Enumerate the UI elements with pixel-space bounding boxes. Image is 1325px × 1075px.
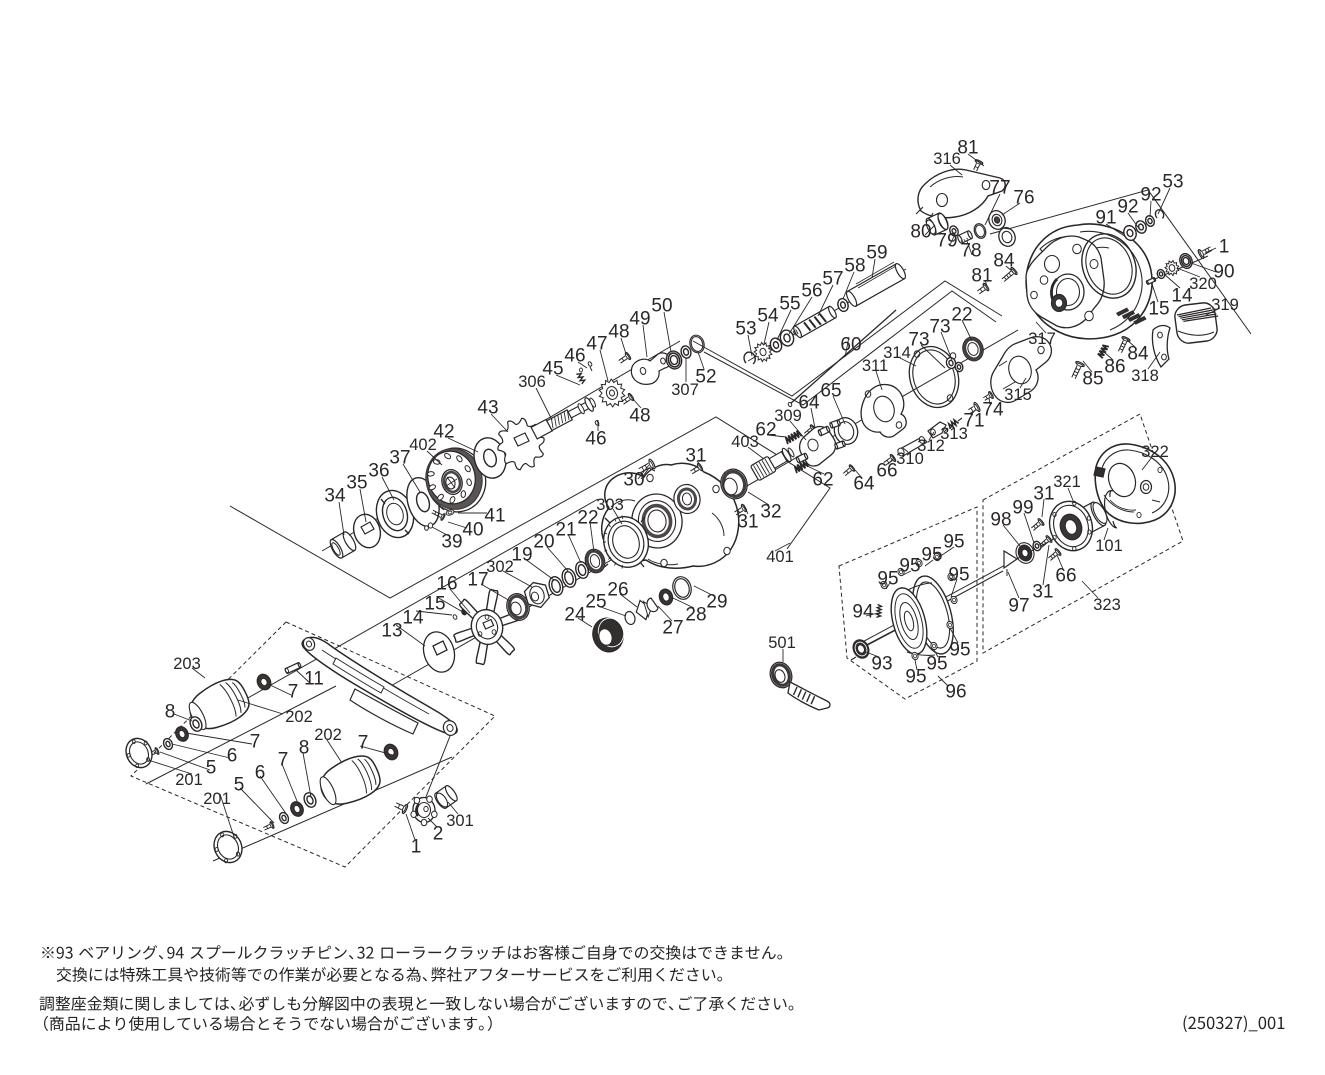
svg-text:73: 73 <box>908 330 929 351</box>
svg-text:60: 60 <box>840 335 861 356</box>
svg-text:30: 30 <box>623 470 644 491</box>
svg-text:17: 17 <box>467 570 488 591</box>
svg-text:95: 95 <box>943 532 964 553</box>
svg-text:91: 91 <box>1095 208 1116 229</box>
svg-text:48: 48 <box>608 322 629 343</box>
svg-text:84: 84 <box>1127 344 1149 365</box>
svg-text:58: 58 <box>844 256 865 277</box>
svg-text:86: 86 <box>1104 357 1125 378</box>
svg-text:403: 403 <box>731 433 759 451</box>
svg-text:8: 8 <box>165 702 176 723</box>
svg-text:22: 22 <box>577 508 598 529</box>
svg-text:311: 311 <box>862 357 888 375</box>
svg-text:8: 8 <box>299 738 310 759</box>
svg-text:84: 84 <box>993 251 1015 272</box>
svg-text:43: 43 <box>477 398 498 419</box>
svg-text:302: 302 <box>486 558 514 576</box>
svg-text:46: 46 <box>564 346 585 367</box>
svg-text:95: 95 <box>905 667 926 688</box>
svg-text:16: 16 <box>436 574 457 595</box>
svg-text:20: 20 <box>533 532 554 553</box>
svg-text:77: 77 <box>989 178 1010 199</box>
svg-text:66: 66 <box>876 461 897 482</box>
svg-text:322: 322 <box>1141 443 1169 461</box>
svg-text:93: 93 <box>871 654 892 675</box>
svg-text:95: 95 <box>949 640 970 661</box>
svg-text:401: 401 <box>766 548 794 566</box>
svg-text:71: 71 <box>963 411 984 432</box>
svg-text:31: 31 <box>685 446 706 467</box>
svg-text:95: 95 <box>948 565 969 586</box>
svg-text:15: 15 <box>1148 299 1169 320</box>
svg-text:501: 501 <box>768 634 796 652</box>
svg-text:11: 11 <box>304 669 324 690</box>
svg-text:29: 29 <box>706 592 727 613</box>
svg-text:321: 321 <box>1053 473 1081 491</box>
svg-text:319: 319 <box>1211 296 1239 314</box>
svg-text:1: 1 <box>1219 237 1230 258</box>
svg-text:73: 73 <box>929 317 950 338</box>
svg-text:92: 92 <box>1117 197 1138 218</box>
svg-text:6: 6 <box>255 763 266 784</box>
svg-text:96: 96 <box>945 682 966 703</box>
svg-text:39: 39 <box>441 532 462 553</box>
svg-text:315: 315 <box>1004 386 1032 404</box>
svg-text:53: 53 <box>735 319 756 340</box>
svg-text:79: 79 <box>936 231 957 252</box>
svg-text:320: 320 <box>1189 275 1217 293</box>
svg-text:316: 316 <box>933 150 961 168</box>
svg-text:25: 25 <box>585 592 606 613</box>
svg-text:41: 41 <box>484 506 505 527</box>
svg-text:22: 22 <box>951 305 972 326</box>
svg-text:37: 37 <box>389 448 410 469</box>
svg-text:7: 7 <box>358 733 369 754</box>
svg-text:7: 7 <box>250 732 261 753</box>
svg-text:7: 7 <box>288 682 299 703</box>
svg-text:5: 5 <box>206 758 217 779</box>
svg-text:97: 97 <box>1008 596 1029 617</box>
svg-text:6: 6 <box>227 746 238 767</box>
svg-text:56: 56 <box>801 281 822 302</box>
svg-text:81: 81 <box>971 266 992 287</box>
svg-text:46: 46 <box>585 429 606 450</box>
svg-text:95: 95 <box>899 556 920 577</box>
svg-text:57: 57 <box>822 269 843 290</box>
svg-text:52: 52 <box>695 367 716 388</box>
svg-text:47: 47 <box>586 334 607 355</box>
svg-text:65: 65 <box>820 381 841 402</box>
svg-text:40: 40 <box>462 520 483 541</box>
svg-text:202: 202 <box>285 708 313 726</box>
svg-text:98: 98 <box>990 510 1011 531</box>
svg-text:32: 32 <box>760 502 781 523</box>
svg-text:48: 48 <box>629 406 650 427</box>
svg-text:74: 74 <box>982 400 1004 421</box>
svg-text:27: 27 <box>662 618 683 639</box>
svg-text:303: 303 <box>596 496 624 514</box>
svg-text:14: 14 <box>1171 286 1193 307</box>
svg-text:203: 203 <box>173 655 201 673</box>
svg-text:64: 64 <box>853 474 875 495</box>
svg-text:2: 2 <box>433 824 444 845</box>
svg-text:14: 14 <box>402 608 424 629</box>
svg-text:24: 24 <box>564 605 586 626</box>
svg-text:15: 15 <box>424 594 445 615</box>
svg-text:50: 50 <box>651 296 672 317</box>
svg-text:28: 28 <box>685 605 706 626</box>
svg-text:323: 323 <box>1093 596 1121 614</box>
svg-text:1: 1 <box>411 837 422 858</box>
svg-text:318: 318 <box>1131 367 1159 385</box>
svg-text:309: 309 <box>774 407 802 425</box>
svg-text:85: 85 <box>1082 369 1103 390</box>
svg-text:34: 34 <box>324 486 346 507</box>
svg-text:66: 66 <box>1055 566 1076 587</box>
svg-text:94: 94 <box>852 602 874 623</box>
svg-text:49: 49 <box>629 309 650 330</box>
svg-text:101: 101 <box>1095 537 1123 555</box>
svg-text:99: 99 <box>1012 498 1033 519</box>
svg-text:59: 59 <box>866 243 887 264</box>
svg-text:95: 95 <box>921 545 942 566</box>
svg-text:62: 62 <box>812 470 833 491</box>
svg-text:201: 201 <box>203 790 231 808</box>
svg-text:317: 317 <box>1028 330 1056 348</box>
svg-text:21: 21 <box>555 520 576 541</box>
svg-text:53: 53 <box>1162 172 1183 193</box>
svg-text:31: 31 <box>737 512 758 533</box>
svg-text:95: 95 <box>926 654 947 675</box>
svg-text:35: 35 <box>346 473 367 494</box>
svg-text:13: 13 <box>381 621 402 642</box>
svg-text:301: 301 <box>446 812 474 830</box>
svg-text:36: 36 <box>368 461 389 482</box>
svg-text:26: 26 <box>607 580 628 601</box>
svg-text:5: 5 <box>234 775 245 796</box>
